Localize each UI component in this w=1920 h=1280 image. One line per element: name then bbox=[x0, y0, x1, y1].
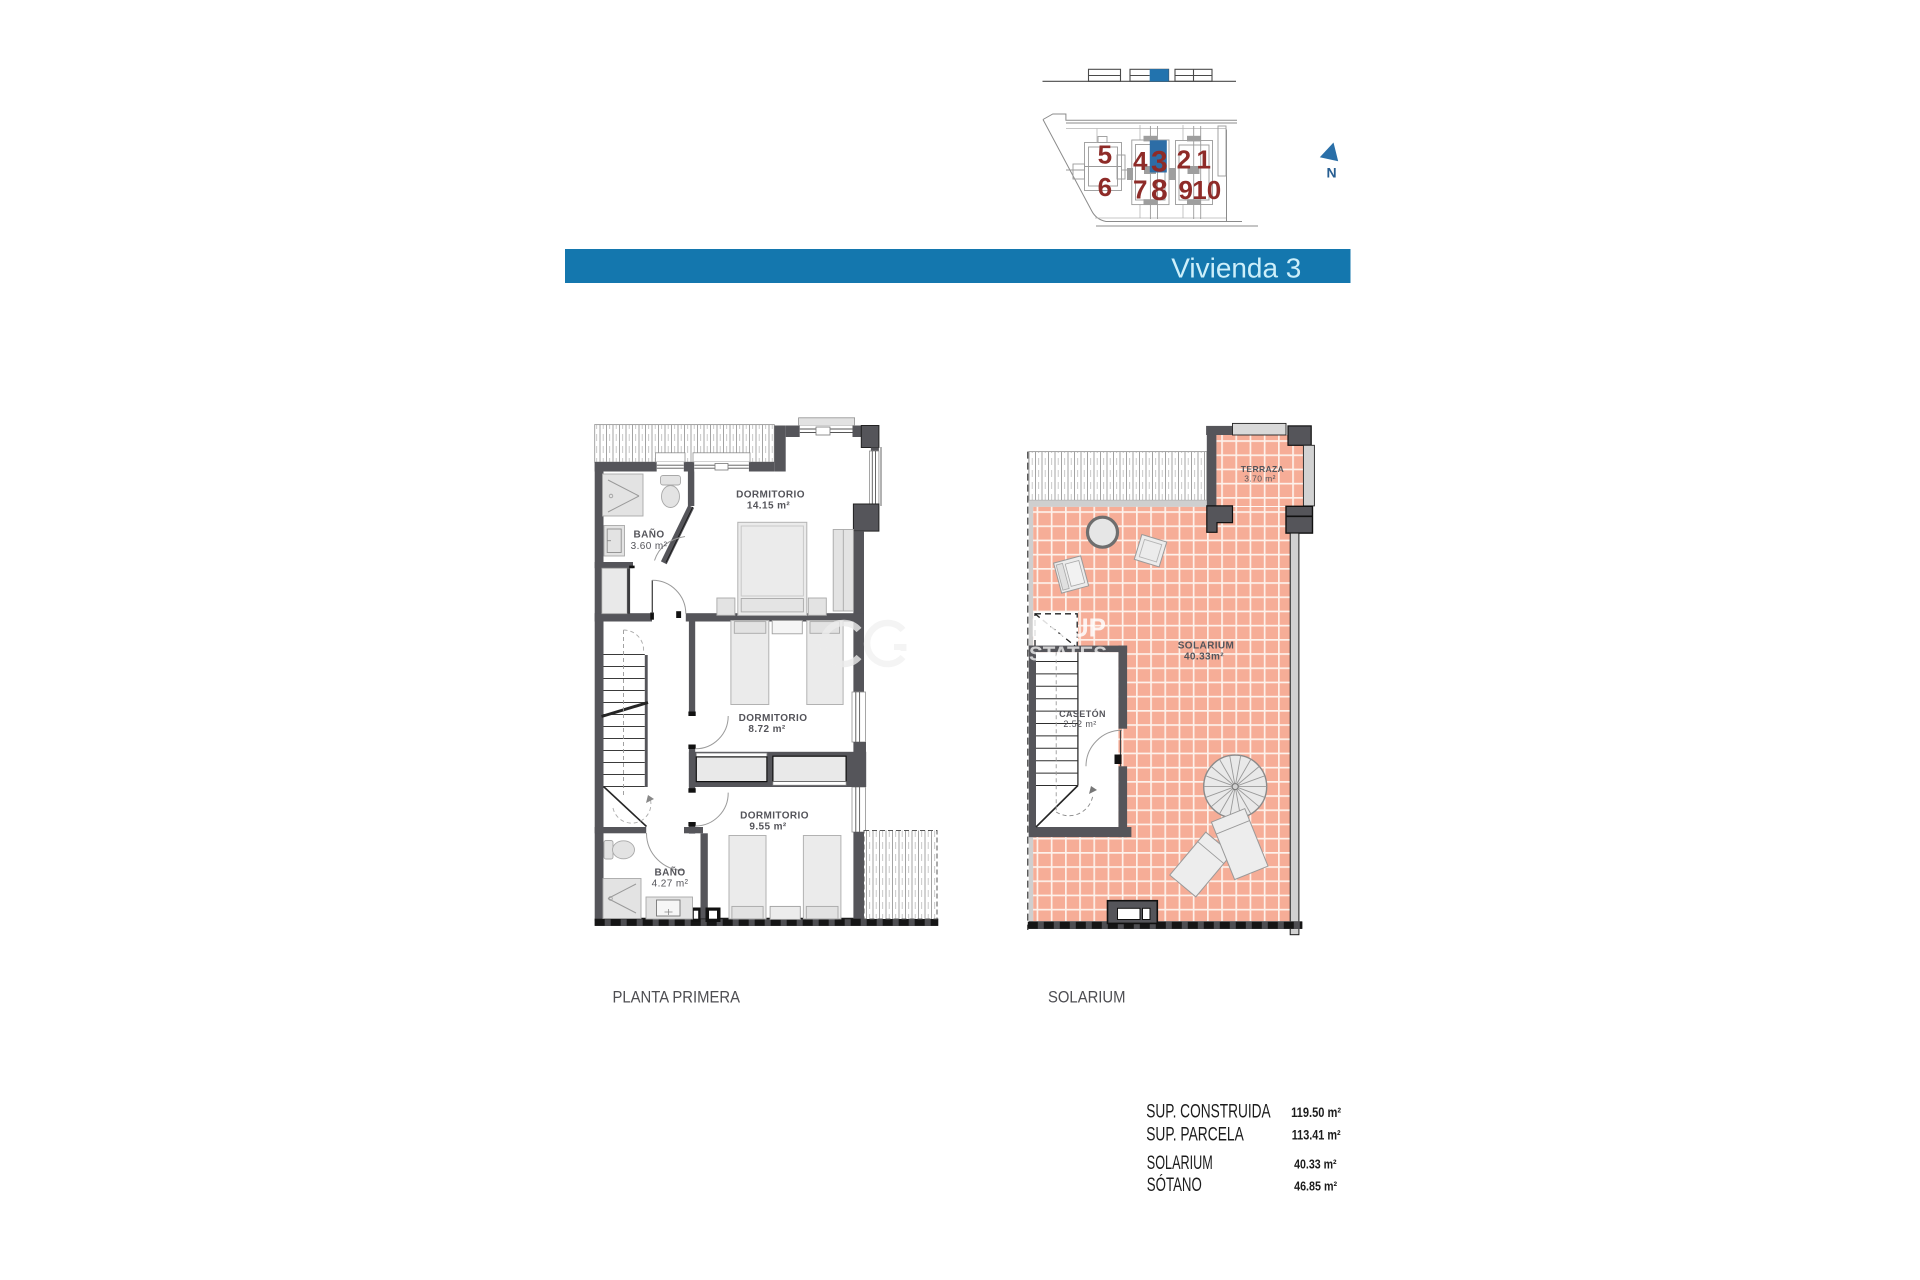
svg-text:4.27 m²: 4.27 m² bbox=[652, 879, 689, 890]
svg-text:10: 10 bbox=[1192, 175, 1221, 205]
svg-text:8.72 m²: 8.72 m² bbox=[748, 724, 786, 735]
svg-text:DORMITORIO: DORMITORIO bbox=[740, 811, 809, 822]
svg-text:ROUP: ROUP bbox=[1031, 613, 1106, 643]
svg-text:7: 7 bbox=[1133, 175, 1147, 205]
svg-text:SUP. CONSTRUIDA: SUP. CONSTRUIDA bbox=[1146, 1102, 1271, 1123]
svg-text:9: 9 bbox=[1178, 175, 1192, 205]
svg-text:6: 6 bbox=[1098, 172, 1112, 202]
svg-text:3.60 m²: 3.60 m² bbox=[631, 541, 668, 552]
svg-text:8: 8 bbox=[1151, 174, 1168, 207]
svg-text:N: N bbox=[1326, 165, 1336, 181]
svg-text:SOLARIUM: SOLARIUM bbox=[1178, 641, 1235, 652]
svg-text:DORMITORIO: DORMITORIO bbox=[736, 490, 805, 501]
svg-text:4: 4 bbox=[1133, 146, 1148, 176]
svg-text:113.41 m²: 113.41 m² bbox=[1292, 1127, 1341, 1143]
svg-text:40.33 m²: 40.33 m² bbox=[1294, 1157, 1337, 1172]
svg-text:9.55 m²: 9.55 m² bbox=[749, 822, 787, 833]
svg-text:BAÑO: BAÑO bbox=[654, 866, 685, 879]
svg-text:SOLARIUM: SOLARIUM bbox=[1147, 1153, 1213, 1174]
svg-text:PLANTA PRIMERA: PLANTA PRIMERA bbox=[613, 988, 741, 1007]
svg-text:STATES: STATES bbox=[1029, 644, 1107, 666]
svg-text:TERRAZA: TERRAZA bbox=[1241, 464, 1284, 474]
svg-text:Vivienda 3: Vivienda 3 bbox=[1171, 252, 1301, 283]
svg-text:SUP. PARCELA: SUP. PARCELA bbox=[1146, 1124, 1244, 1145]
svg-text:BAÑO: BAÑO bbox=[633, 528, 664, 541]
svg-text:DORMITORIO: DORMITORIO bbox=[739, 713, 808, 724]
svg-text:119.50 m²: 119.50 m² bbox=[1291, 1104, 1341, 1120]
svg-text:SÓTANO: SÓTANO bbox=[1147, 1174, 1202, 1196]
svg-text:3.70 m²: 3.70 m² bbox=[1244, 474, 1276, 484]
svg-text:2: 2 bbox=[1177, 145, 1191, 175]
svg-text:CASETÓN: CASETÓN bbox=[1059, 708, 1106, 719]
svg-text:5: 5 bbox=[1098, 140, 1112, 170]
svg-text:1: 1 bbox=[1196, 145, 1210, 175]
svg-text:40.33m²: 40.33m² bbox=[1184, 652, 1224, 663]
svg-text:46.85 m²: 46.85 m² bbox=[1294, 1179, 1338, 1194]
svg-text:SOLARIUM: SOLARIUM bbox=[1048, 988, 1126, 1007]
svg-text:2.52 m²: 2.52 m² bbox=[1063, 719, 1096, 729]
svg-text:14.15 m²: 14.15 m² bbox=[747, 501, 790, 512]
